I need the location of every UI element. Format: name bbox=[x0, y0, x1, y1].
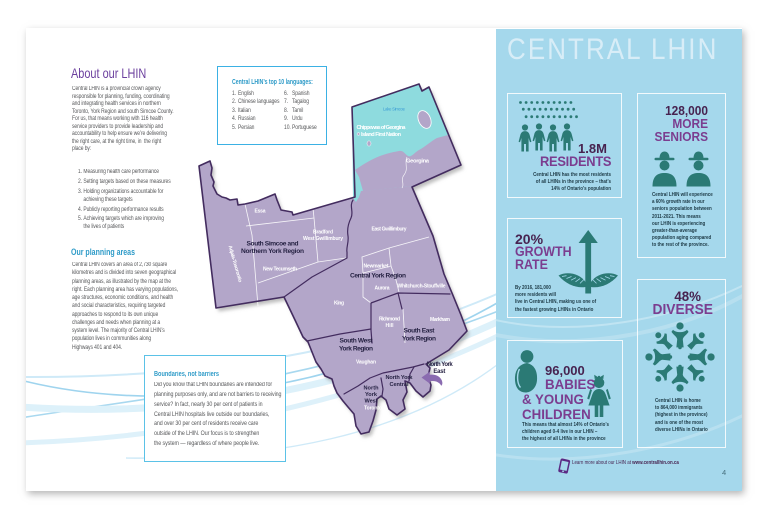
svg-text:Lake Simcoe: Lake Simcoe bbox=[383, 107, 406, 112]
svg-text:Newmarket: Newmarket bbox=[364, 264, 389, 270]
svg-text:West Gwillimbury: West Gwillimbury bbox=[303, 236, 343, 242]
svg-text:Bradford: Bradford bbox=[313, 230, 333, 236]
svg-text:Richmond: Richmond bbox=[379, 316, 400, 322]
svg-text:South East: South East bbox=[404, 327, 436, 334]
svg-text:Central York Region: Central York Region bbox=[350, 273, 406, 280]
svg-text:Chippewas of Georgina: Chippewas of Georgina bbox=[357, 125, 407, 131]
svg-text:Island First Nation: Island First Nation bbox=[361, 132, 402, 138]
svg-text:East: East bbox=[433, 369, 445, 375]
svg-text:West: West bbox=[365, 398, 378, 404]
svg-text:North York: North York bbox=[427, 362, 454, 368]
svg-text:East Gwillimbury: East Gwillimbury bbox=[372, 227, 407, 233]
svg-text:South West: South West bbox=[340, 338, 374, 345]
svg-text:York: York bbox=[365, 392, 378, 398]
svg-text:North: North bbox=[364, 385, 380, 391]
svg-text:Aurora: Aurora bbox=[375, 285, 390, 291]
svg-text:Central: Central bbox=[390, 382, 409, 388]
svg-text:York Region: York Region bbox=[402, 335, 436, 342]
svg-text:York Region: York Region bbox=[339, 345, 373, 352]
svg-text:Hill: Hill bbox=[386, 323, 395, 329]
svg-text:North York: North York bbox=[386, 375, 414, 381]
svg-text:King: King bbox=[334, 300, 344, 306]
svg-text:Georgina: Georgina bbox=[406, 158, 430, 164]
svg-text:New Tecumseth: New Tecumseth bbox=[263, 267, 297, 273]
svg-text:Northern York Region: Northern York Region bbox=[241, 248, 304, 255]
svg-text:Whitchurch-Stouffville: Whitchurch-Stouffville bbox=[398, 283, 446, 289]
svg-text:South Simcoe and: South Simcoe and bbox=[247, 240, 299, 247]
svg-text:Essa: Essa bbox=[255, 209, 266, 215]
svg-text:Vaughan: Vaughan bbox=[356, 359, 376, 365]
svg-text:Toronto: Toronto bbox=[364, 405, 382, 411]
svg-text:Markham: Markham bbox=[430, 317, 451, 323]
